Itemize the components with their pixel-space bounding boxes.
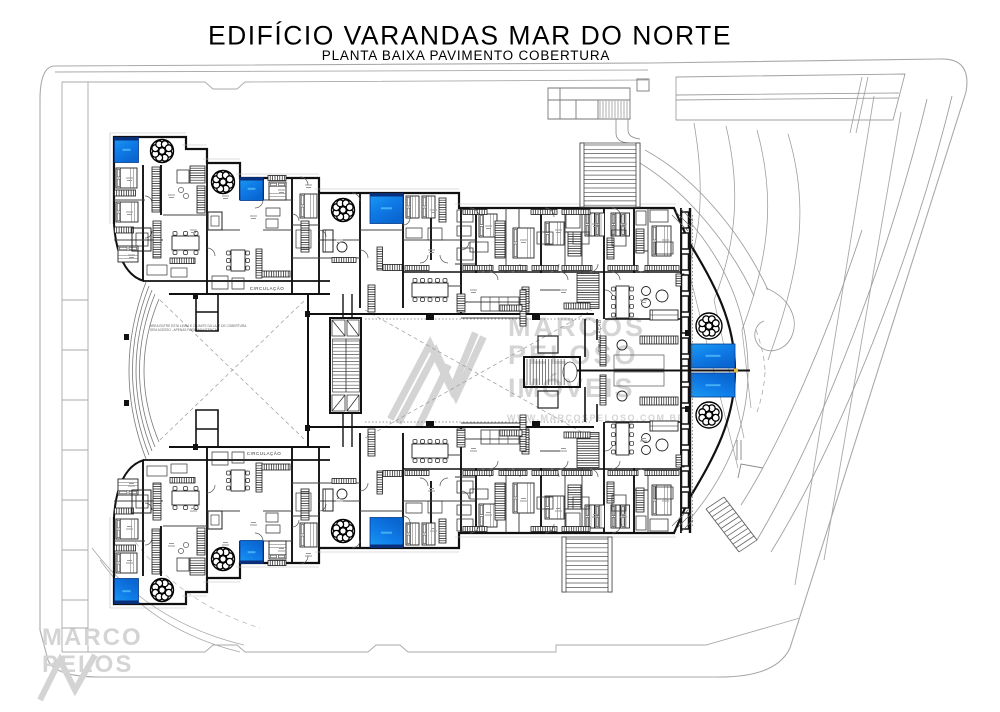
svg-text:PLANTA BAIXA PAVIMENTO COBERTU: PLANTA BAIXA PAVIMENTO COBERTURA [322, 48, 610, 63]
svg-text:CIRCULAÇÃO: CIRCULAÇÃO [597, 319, 602, 352]
svg-text:MARCO: MARCO [42, 624, 143, 651]
svg-text:EDIFÍCIO VARANDAS MAR DO NORTE: EDIFÍCIO VARANDAS MAR DO NORTE [208, 21, 732, 51]
svg-text:CIRCULAÇÃO: CIRCULAÇÃO [250, 285, 285, 291]
svg-text:CIRCULAÇÃO: CIRCULAÇÃO [247, 450, 282, 456]
svg-text:PELOS: PELOS [42, 651, 133, 678]
